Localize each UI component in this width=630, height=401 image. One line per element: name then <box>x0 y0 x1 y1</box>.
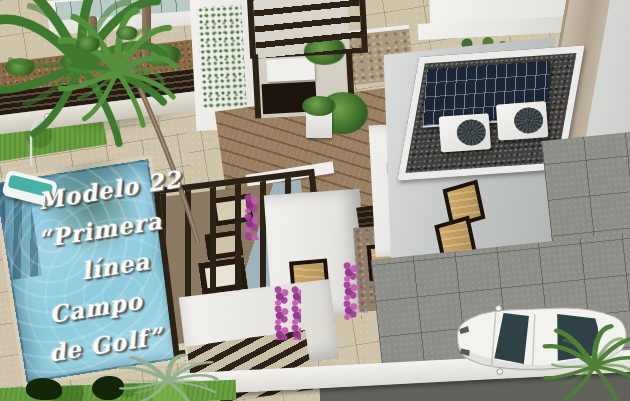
watermark: Modelo 22 “Primera línea Campo de Golf” <box>6 168 204 382</box>
palm-tree <box>538 322 630 401</box>
watermark-line: de Golf” <box>20 320 192 369</box>
bougainvillea <box>273 286 301 340</box>
planter-plant <box>302 96 336 116</box>
plant-silhouette <box>26 378 62 400</box>
potted-plant <box>76 36 100 52</box>
palm-tree <box>52 4 182 134</box>
kitchen-counter <box>266 57 315 81</box>
bougainvillea <box>342 262 362 320</box>
ac-unit <box>439 113 491 152</box>
villa-render: Modelo 22 “Primera línea Campo de Golf” <box>0 0 630 401</box>
bougainvillea <box>243 194 259 240</box>
ac-unit <box>496 101 548 140</box>
potted-plant <box>116 26 138 40</box>
